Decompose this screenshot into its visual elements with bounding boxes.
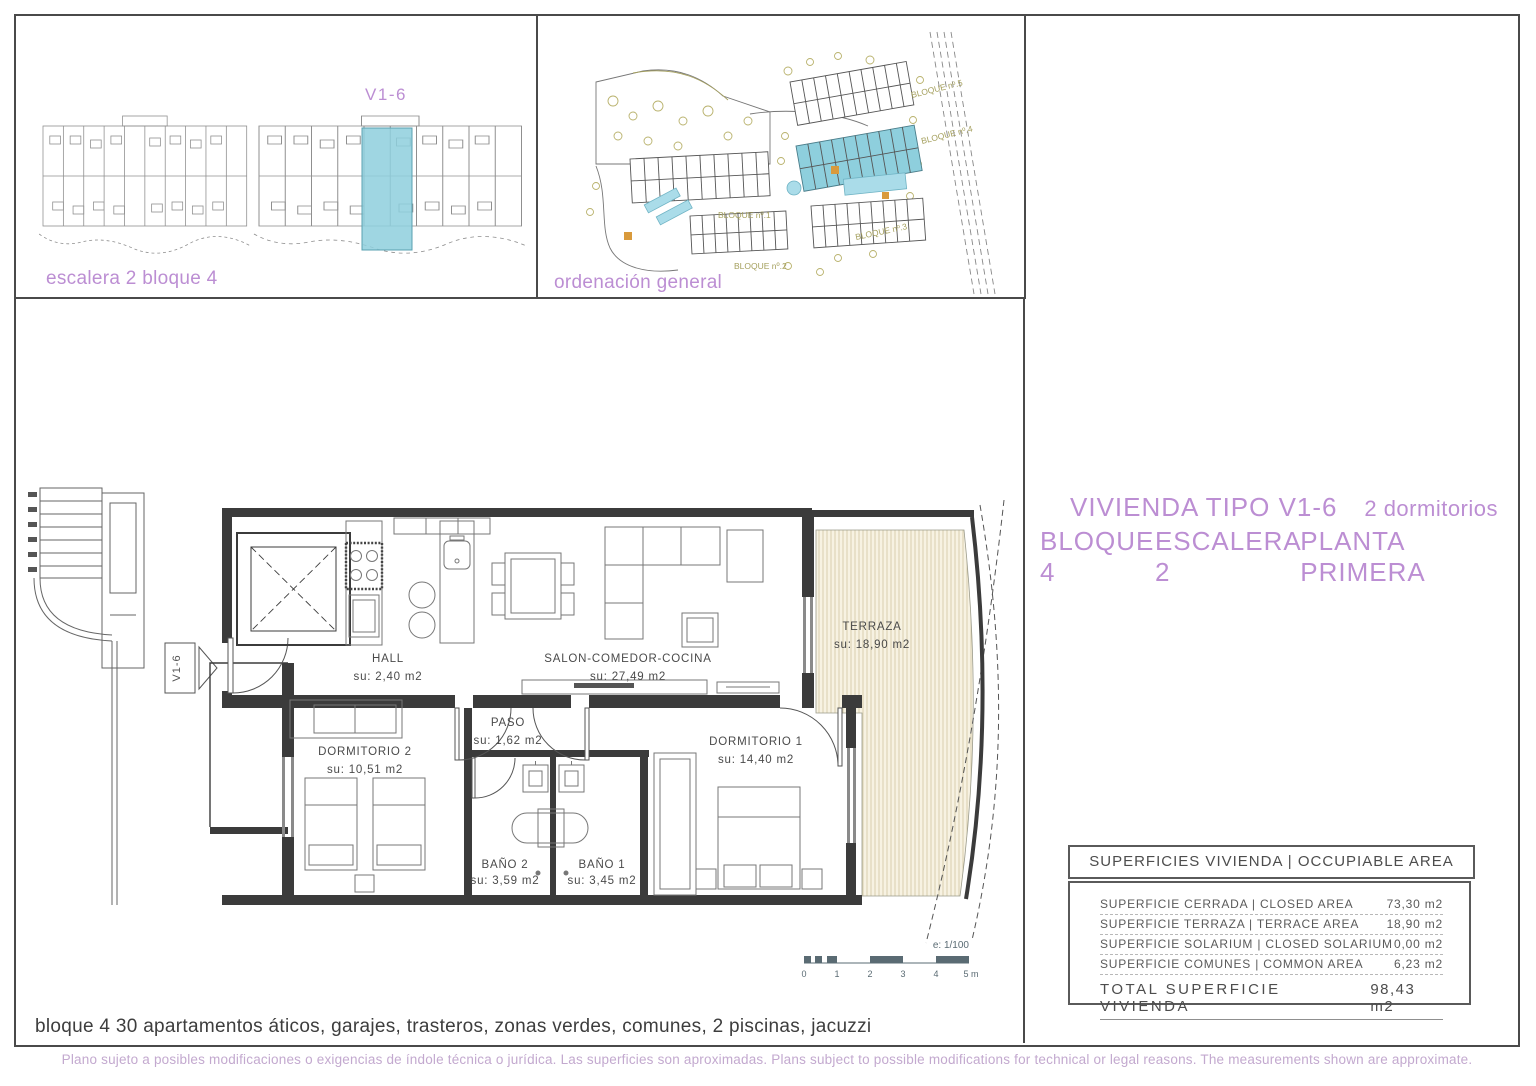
title-bloque: BLOQUE 4	[1040, 526, 1155, 588]
windows	[282, 597, 856, 843]
kitchen	[346, 518, 490, 645]
area-value: 73,30 m2	[1387, 897, 1443, 911]
scale-tick-3: 3	[900, 969, 905, 979]
title-vivienda-tipo: VIVIENDA TIPO V1-6	[1070, 492, 1338, 523]
scale-bar: e: 1/100 0 1 2 3 4 5 m	[801, 940, 978, 979]
sofa	[605, 527, 720, 639]
room-su-dorm1: su: 14,40 m2	[718, 754, 794, 766]
doors	[228, 638, 842, 798]
unit-marker: V1-6	[165, 643, 217, 693]
table-row: SUPERFICIE COMUNES | COMMON AREA 6,23 m2	[1100, 955, 1443, 975]
nightstand	[355, 875, 374, 892]
bloque-3	[811, 198, 926, 248]
nightstand	[696, 869, 716, 889]
unit-title-block: VIVIENDA TIPO V1-6 2 dormitorios BLOQUE …	[1040, 492, 1498, 588]
nightstand	[802, 869, 822, 889]
scale-tick-4: 4	[933, 969, 938, 979]
room-label-dorm1: DORMITORIO 1	[709, 736, 803, 748]
coffee-table	[682, 613, 718, 647]
dormitorio2-furniture	[290, 700, 425, 892]
room-label-bano1: BAÑO 1	[579, 858, 626, 871]
escalera-drawing: V1-6 escalera 2 bloque 4	[16, 16, 536, 297]
room-su-bano1: su: 3,45 m2	[568, 875, 637, 887]
stove-icon	[346, 543, 382, 589]
common-stairs	[28, 488, 144, 905]
areas-table-header: SUPERFICIES VIVIENDA | OCCUPIABLE AREA	[1068, 845, 1475, 879]
room-label-paso: PASO	[491, 717, 525, 729]
room-label-salon: SALON-COMEDOR-COCINA	[544, 653, 711, 665]
bed-single	[305, 778, 357, 870]
salon-furniture	[492, 527, 779, 694]
bed-single	[373, 778, 425, 870]
room-label-hall: HALL	[372, 653, 404, 665]
room-su-salon: su: 27,49 m2	[590, 671, 666, 683]
highlighted-unit	[362, 128, 412, 250]
area-value: 6,23 m2	[1394, 957, 1443, 971]
bed-double	[718, 787, 800, 889]
room-su-hall: su: 2,40 m2	[354, 671, 423, 683]
area-value: 0,00 m2	[1394, 937, 1443, 951]
escalera-caption: escalera 2 bloque 4	[46, 268, 218, 289]
floor-plan: V1-6	[14, 295, 1024, 1047]
total-label: TOTAL SUPERFICIE VIVIENDA	[1100, 981, 1370, 1015]
area-label: SUPERFICIE COMUNES | COMMON AREA	[1100, 957, 1363, 971]
title-line1: VIVIENDA TIPO V1-6 2 dormitorios	[1040, 492, 1498, 523]
area-label: SUPERFICIE SOLARIUM | CLOSED SOLARIUM	[1100, 937, 1393, 951]
bloque-2-label: BLOQUE nº.2	[734, 261, 787, 271]
bloque-1-label: BLOQUE nº.1	[718, 210, 771, 220]
ordenacion-caption: ordenación general	[554, 272, 722, 293]
areas-table: SUPERFICIE CERRADA | CLOSED AREA 73,30 m…	[1068, 881, 1471, 1005]
table-row: SUPERFICIE SOLARIUM | CLOSED SOLARIUM 0,…	[1100, 935, 1443, 955]
unit-marker-label: V1-6	[171, 654, 183, 681]
area-label: SUPERFICIE TERRAZA | TERRACE AREA	[1100, 917, 1359, 931]
entry-arrow-icon	[199, 647, 217, 689]
scale-tick-0: 0	[801, 969, 806, 979]
panel-escalera: V1-6 escalera 2 bloque 4	[14, 14, 538, 299]
building-left	[39, 116, 250, 253]
title-escalera: ESCALERA 2	[1155, 526, 1300, 588]
unit-label: V1-6	[365, 85, 407, 104]
legal-footer: Plano sujeto a posibles modificaciones o…	[14, 1052, 1520, 1067]
sink-icon	[444, 536, 470, 569]
room-su-terraza: su: 18,90 m2	[834, 639, 910, 651]
panel-ordenacion: BLOQUE nº.5 BLOQUE nº.4 BLOQUE nº.1 BLOQ…	[536, 14, 1026, 299]
room-label-terraza: TERRAZA	[842, 621, 901, 633]
stair-ticks	[28, 492, 37, 572]
scale-tick-5: 5 m	[963, 969, 978, 979]
area-label: SUPERFICIE CERRADA | CLOSED AREA	[1100, 897, 1353, 911]
title-dormitorios: 2 dormitorios	[1364, 496, 1498, 522]
table-row: SUPERFICIE TERRAZA | TERRACE AREA 18,90 …	[1100, 915, 1443, 935]
site-plan-drawing: BLOQUE nº.5 BLOQUE nº.4 BLOQUE nº.1 BLOQ…	[538, 16, 1024, 297]
room-label-bano2: BAÑO 2	[482, 858, 529, 871]
title-line2: BLOQUE 4 ESCALERA 2 PLANTA PRIMERA	[1040, 526, 1498, 588]
wardrobe-dorm1	[654, 753, 696, 895]
bloque-4-label: BLOQUE nº.4	[920, 123, 974, 146]
room-su-dorm2: su: 10,51 m2	[327, 764, 403, 776]
washbasin-icon	[559, 761, 584, 792]
scale-tick-2: 2	[867, 969, 872, 979]
area-value: 18,90 m2	[1387, 917, 1443, 931]
entry-door-arc	[228, 638, 288, 693]
armchair	[727, 530, 763, 582]
bloque-5	[790, 62, 914, 126]
patio-lightwell	[237, 533, 350, 645]
room-su-bano2: su: 3,59 m2	[471, 875, 540, 887]
title-planta: PLANTA PRIMERA	[1300, 526, 1498, 588]
railway-lines	[930, 32, 995, 294]
room-label-dorm2: DORMITORIO 2	[318, 746, 412, 758]
bano2-door-arc	[472, 758, 515, 798]
bloque-5-label: BLOQUE nº.5	[910, 77, 964, 100]
table-row: SUPERFICIE CERRADA | CLOSED AREA 73,30 m…	[1100, 895, 1443, 915]
washbasin-icon	[523, 761, 548, 792]
plan-sheet: V1-6 escalera 2 bloque 4	[0, 0, 1536, 1086]
room-su-paso: su: 1,62 m2	[474, 735, 543, 747]
bay-outline	[210, 663, 288, 827]
dormitorio1-furniture	[654, 753, 822, 895]
stool	[409, 582, 435, 608]
total-value: 98,43 m2	[1370, 981, 1443, 1015]
stool	[409, 612, 435, 638]
sheet-caption: bloque 4 30 apartamentos áticos, garajes…	[35, 1016, 871, 1038]
bloque-1	[630, 152, 770, 203]
scale-tick-1: 1	[834, 969, 839, 979]
dining-table	[492, 553, 574, 619]
table-total-row: TOTAL SUPERFICIE VIVIENDA 98,43 m2	[1100, 975, 1443, 1020]
scale-label: e: 1/100	[933, 940, 970, 951]
